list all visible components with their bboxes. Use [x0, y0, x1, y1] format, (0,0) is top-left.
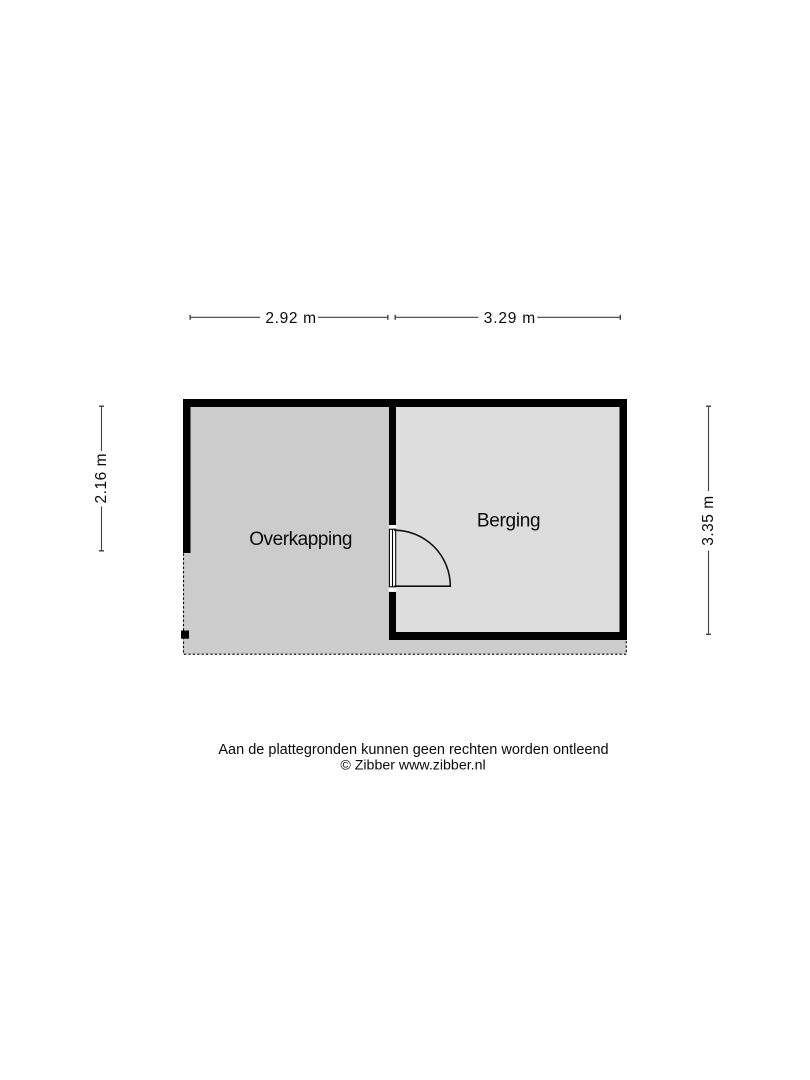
svg-text:3.35 m: 3.35 m [700, 496, 717, 546]
svg-text:3.29 m: 3.29 m [484, 310, 535, 327]
svg-text:Overkapping: Overkapping [249, 529, 352, 550]
svg-text:Aan de plattegronden kunnen ge: Aan de plattegronden kunnen geen rechten… [218, 742, 608, 758]
svg-text:2.92 m: 2.92 m [265, 310, 316, 327]
svg-text:© Zibber www.zibber.nl: © Zibber www.zibber.nl [340, 757, 485, 773]
svg-text:Berging: Berging [477, 511, 540, 532]
svg-text:2.16 m: 2.16 m [93, 454, 110, 504]
